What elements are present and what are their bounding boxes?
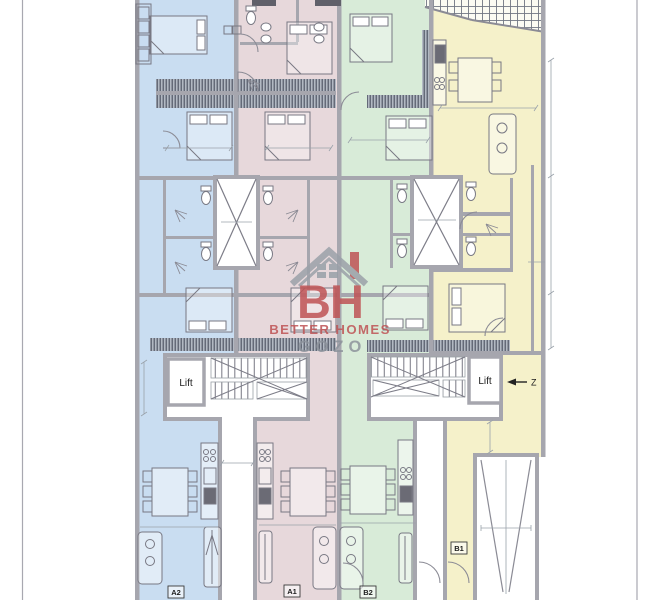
sofa (313, 527, 336, 589)
bed (287, 22, 332, 74)
sofa (489, 114, 516, 174)
floor-plan-page: Lift Lift Z (0, 0, 660, 600)
logo-region-line: GOZO (298, 338, 367, 356)
apartment-label-b2: B2 (360, 586, 376, 598)
logo-monogram: BH (297, 275, 363, 328)
apartment-b2-label: B2 (363, 588, 373, 597)
bed (187, 112, 232, 160)
apartment-b1-label: B1 (454, 544, 464, 553)
floor-plan-drawing: Lift Lift Z (0, 0, 660, 600)
apartment-label-b1: B1 (451, 542, 467, 554)
kitchen-counter (433, 40, 446, 105)
apartment-label-a1: A1 (284, 585, 300, 597)
lift-right: Lift (469, 357, 501, 403)
kitchen-counter (257, 443, 273, 519)
chaise (399, 533, 412, 583)
apartment-a2-label: A2 (171, 588, 181, 597)
chaise (259, 531, 272, 583)
sofa (138, 532, 162, 584)
section-marker-label: Z (531, 378, 537, 388)
chaise (204, 527, 221, 587)
kitchen-counter (398, 440, 413, 515)
bed (386, 116, 432, 160)
apartment-label-a2: A2 (168, 586, 184, 598)
lift-left-label: Lift (179, 378, 193, 389)
bed (265, 112, 310, 160)
sofa (340, 527, 363, 589)
lift-left: Lift (168, 359, 204, 405)
stairs-right (371, 357, 465, 397)
apartment-a1-label: A1 (287, 587, 297, 596)
lift-right-label: Lift (478, 376, 492, 387)
bed (186, 288, 232, 332)
bed (449, 284, 505, 332)
logo-name-line: BETTER HOMES (269, 322, 391, 337)
bed (150, 16, 207, 54)
kitchen-counter (201, 443, 218, 519)
bed (350, 14, 392, 62)
